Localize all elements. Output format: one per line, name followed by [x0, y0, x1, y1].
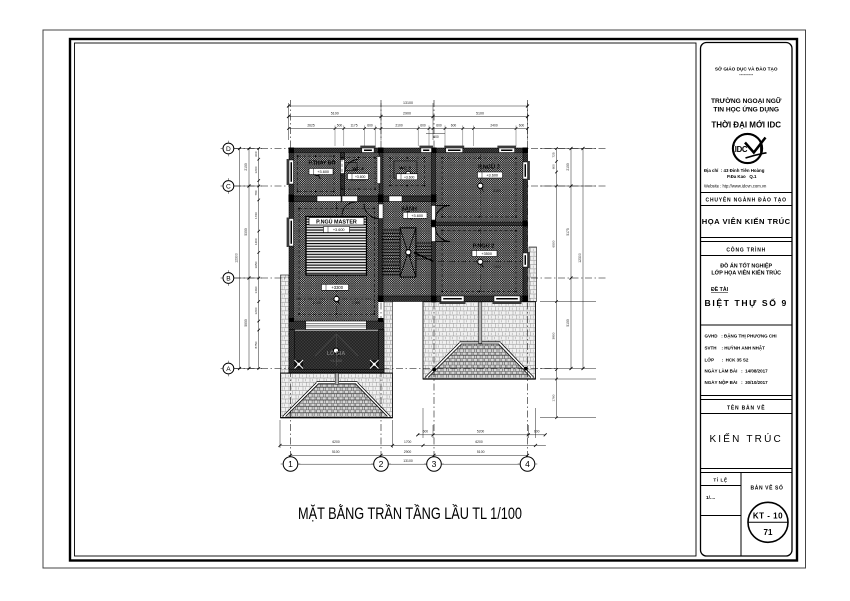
svg-text:600: 600: [552, 164, 556, 169]
svg-text:BẢN VẼ SỐ: BẢN VẼ SỐ: [751, 485, 784, 492]
svg-text:600: 600: [534, 430, 540, 434]
svg-text:ĐỒ ÁN TỐT NGHIỆP: ĐỒ ÁN TỐT NGHIỆP: [720, 262, 772, 270]
svg-text:CHUYÊN NGÀNH ĐÀO TẠO: CHUYÊN NGÀNH ĐÀO TẠO: [706, 195, 787, 203]
svg-text:1200: 1200: [254, 307, 258, 314]
svg-text:6200: 6200: [332, 440, 340, 444]
svg-text:600: 600: [436, 123, 442, 127]
svg-text:1175: 1175: [350, 123, 357, 127]
svg-text:2100: 2100: [566, 163, 570, 171]
svg-text:TỈ LỆ: TỈ LỆ: [713, 476, 727, 483]
svg-text:2100: 2100: [244, 163, 248, 171]
svg-text:2.000: 2.000: [352, 301, 361, 305]
svg-text:A: A: [226, 366, 231, 373]
svg-text:B: B: [226, 275, 231, 282]
svg-text:600: 600: [519, 123, 525, 127]
svg-text:D: D: [226, 146, 231, 153]
svg-text:+3500: +3500: [481, 252, 492, 256]
svg-text:4: 4: [525, 459, 530, 469]
svg-text:2625: 2625: [307, 123, 315, 127]
svg-text:CÔNG TRÌNH: CÔNG TRÌNH: [726, 246, 766, 254]
svg-text:3: 3: [432, 459, 437, 469]
svg-text:+3.600: +3.600: [486, 174, 498, 178]
svg-text:WC 3: WC 3: [399, 166, 411, 171]
svg-text:TIN HỌC ỨNG DỤNG: TIN HỌC ỨNG DỤNG: [713, 105, 779, 114]
svg-text:1: 1: [288, 459, 293, 469]
svg-text:C: C: [226, 183, 231, 190]
svg-text:+3.600: +3.600: [404, 175, 415, 179]
svg-text:5100: 5100: [332, 450, 340, 454]
svg-text:P.NGỦ 2: P.NGỦ 2: [473, 243, 495, 250]
svg-text:IDC: IDC: [735, 145, 748, 154]
svg-text:KT - 10: KT - 10: [753, 512, 783, 521]
svg-text:1760: 1760: [552, 394, 556, 401]
svg-text:SẢNH: SẢNH: [401, 206, 417, 213]
svg-text:12300: 12300: [578, 253, 582, 263]
svg-text:+3.600: +3.600: [333, 228, 345, 232]
svg-text:Website : htp://www.idcvn.com.: Website : htp://www.idcvn.com.vn: [704, 183, 767, 188]
svg-text:+3.600: +3.600: [317, 170, 329, 174]
svg-text:1460: 1460: [254, 286, 258, 293]
svg-text:ĐỀ TÀI: ĐỀ TÀI: [711, 286, 729, 293]
svg-text:6500: 6500: [552, 240, 556, 247]
svg-text:12300: 12300: [235, 253, 239, 263]
svg-text:---------: ---------: [739, 72, 753, 77]
svg-text:TRƯỜNG NGOẠI NGỮ: TRƯỜNG NGOẠI NGỮ: [711, 96, 782, 105]
svg-text:2400: 2400: [490, 123, 498, 127]
svg-text:1/....: 1/....: [706, 495, 715, 501]
svg-text:P.NGỦ 3: P.NGỦ 3: [478, 164, 500, 171]
svg-text:600: 600: [420, 123, 426, 127]
svg-text:WC 4: WC 4: [352, 166, 364, 171]
svg-text:SVTH : HUỲNH ANH NHẬT: SVTH : HUỲNH ANH NHẬT: [705, 345, 766, 351]
svg-text:780: 780: [254, 190, 258, 195]
svg-text:2400: 2400: [493, 189, 501, 193]
svg-text:5175: 5175: [566, 228, 570, 236]
svg-text:1200: 1200: [254, 238, 258, 245]
svg-text:BIỆT THỰ SỐ 9: BIỆT THỰ SỐ 9: [705, 297, 788, 308]
svg-text:2900: 2900: [403, 111, 411, 115]
svg-text:5200: 5200: [477, 430, 485, 434]
svg-text:P.THAY ĐỒ: P.THAY ĐỒ: [308, 160, 335, 167]
svg-text:P.NGỦ MASTER: P.NGỦ MASTER: [316, 219, 357, 226]
svg-text:3800: 3800: [552, 332, 556, 339]
svg-text:1200: 1200: [254, 166, 258, 173]
svg-text:Địa chỉ : 43 Đinh Tiên Hoàng: Địa chỉ : 43 Đinh Tiên Hoàng: [704, 168, 765, 173]
svg-text:MẶT BẰNG TRẦN TẦNG LẦU TL 1/10: MẶT BẰNG TRẦN TẦNG LẦU TL 1/100: [298, 504, 522, 523]
svg-text:6200: 6200: [475, 440, 483, 444]
svg-text:600: 600: [451, 123, 457, 127]
svg-text:HỌA VIÊN KIẾN TRÚC: HỌA VIÊN KIẾN TRÚC: [702, 216, 791, 226]
svg-text:+3.450: +3.450: [330, 358, 343, 363]
svg-text:THỜI ĐẠI MỚI IDC: THỜI ĐẠI MỚI IDC: [711, 121, 781, 130]
svg-text:1760: 1760: [254, 212, 258, 219]
svg-text:+3.600: +3.600: [411, 214, 423, 218]
svg-text:5300: 5300: [244, 228, 248, 236]
svg-text:NGÀY NỘP BÀI : 30/10/2017: NGÀY NỘP BÀI : 30/10/2017: [705, 378, 769, 385]
svg-text:GVHD : ĐẶNG THỊ PHƯƠNG CHI: GVHD : ĐẶNG THỊ PHƯƠNG CHI: [705, 333, 777, 339]
svg-text:SỞ GIÁO DỤC VÀ ĐÀO TẠO: SỞ GIÁO DỤC VÀ ĐÀO TẠO: [715, 66, 778, 72]
svg-text:5900: 5900: [244, 319, 248, 327]
svg-text:LỚP : HCK 35 S2: LỚP : HCK 35 S2: [705, 356, 749, 363]
svg-text:KIẾN TRÚC: KIẾN TRÚC: [709, 432, 783, 445]
svg-text:2400: 2400: [493, 265, 501, 269]
svg-text:2.000: 2.000: [313, 301, 322, 305]
svg-text:LỚP HỌA VIÊN KIẾN TRÚC: LỚP HỌA VIÊN KIẾN TRÚC: [711, 269, 781, 277]
svg-text:8750: 8750: [254, 341, 258, 348]
svg-text:5100: 5100: [476, 111, 484, 115]
svg-text:1700: 1700: [404, 440, 412, 444]
svg-text:+3300: +3300: [331, 285, 343, 290]
svg-text:13100: 13100: [403, 459, 413, 463]
svg-text:P.Đa Kao Q.1: P.Đa Kao Q.1: [727, 174, 757, 179]
svg-text:2900: 2900: [404, 450, 412, 454]
svg-text:+3.600: +3.600: [355, 175, 366, 179]
svg-text:5100: 5100: [331, 111, 339, 115]
svg-text:600: 600: [254, 151, 258, 156]
svg-text:71: 71: [764, 528, 773, 537]
svg-text:1650: 1650: [254, 261, 258, 268]
svg-text:NGÀY LÀM BÀI : 14/08/2017: NGÀY LÀM BÀI : 14/08/2017: [705, 368, 769, 374]
svg-text:600: 600: [367, 123, 373, 127]
svg-text:5100: 5100: [566, 319, 570, 327]
svg-text:2100: 2100: [395, 123, 403, 127]
svg-text:600: 600: [433, 135, 439, 139]
svg-text:TÊN BẢN VẼ: TÊN BẢN VẼ: [727, 404, 765, 412]
svg-text:2: 2: [379, 459, 384, 469]
svg-text:LÔ GIA: LÔ GIA: [327, 349, 346, 357]
svg-text:500: 500: [337, 123, 343, 127]
svg-text:13100: 13100: [403, 101, 413, 105]
svg-text:600: 600: [423, 430, 429, 434]
svg-text:5100: 5100: [477, 450, 485, 454]
svg-text:725: 725: [552, 152, 556, 157]
